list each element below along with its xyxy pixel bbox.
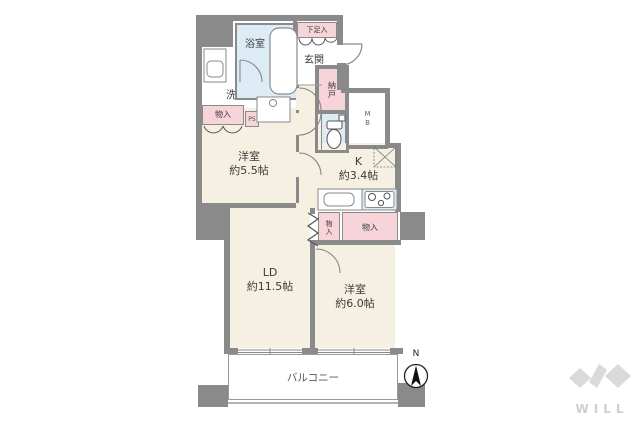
compass-icon	[402, 360, 430, 394]
room-living-dining: LD 約11.5帖	[230, 208, 310, 348]
floorplan-canvas: 洗面室 浴室 玄関 下足入 納戸 MB PS 洋室 約5.5帖 物入 PS K …	[0, 0, 640, 427]
will-logo-icon	[566, 362, 638, 400]
storage-nando: 納戸	[318, 68, 346, 111]
entrance-label: 玄関	[304, 51, 324, 66]
living-dining-label: LD 約11.5帖	[230, 266, 310, 294]
meter-box: MB	[350, 93, 385, 145]
room-bath: 浴室	[235, 23, 300, 100]
closet-bedroom1: 物入	[202, 105, 244, 125]
bath-label: 浴室	[245, 35, 265, 50]
room-bedroom2: 洋室 約6.0帖	[315, 245, 395, 348]
shoe-cabinet-label: 下足入	[307, 27, 328, 34]
entrance-door-arc	[341, 44, 362, 65]
closet-wide: 物入	[342, 212, 398, 243]
bedroom1-label: 洋室 約5.5帖	[202, 150, 296, 178]
closet-wide-label: 物入	[362, 224, 378, 232]
kitchen-label: K 約3.4帖	[322, 155, 395, 183]
compass-north-label: N	[402, 349, 430, 359]
will-logo: WILL	[566, 362, 638, 416]
shoe-cabinet: 下足入	[297, 22, 337, 38]
closet-bedroom1-label: 物入	[215, 111, 231, 119]
compass: N	[402, 349, 430, 395]
balcony: バルコニー	[228, 354, 398, 400]
closet-narrow-label: 物入	[324, 220, 334, 236]
bedroom2-label: 洋室 約6.0帖	[315, 283, 395, 311]
closet-narrow: 物入	[318, 212, 340, 243]
meter-box-label: MB	[364, 110, 372, 128]
pipe-space-left: PS	[245, 111, 259, 127]
pipe-space-left-label: PS	[248, 116, 255, 123]
balcony-label: バルコニー	[287, 370, 339, 385]
storage-nando-label: 納戸	[327, 81, 338, 99]
will-logo-text: WILL	[566, 402, 638, 416]
room-kitchen: K 約3.4帖	[322, 143, 395, 210]
